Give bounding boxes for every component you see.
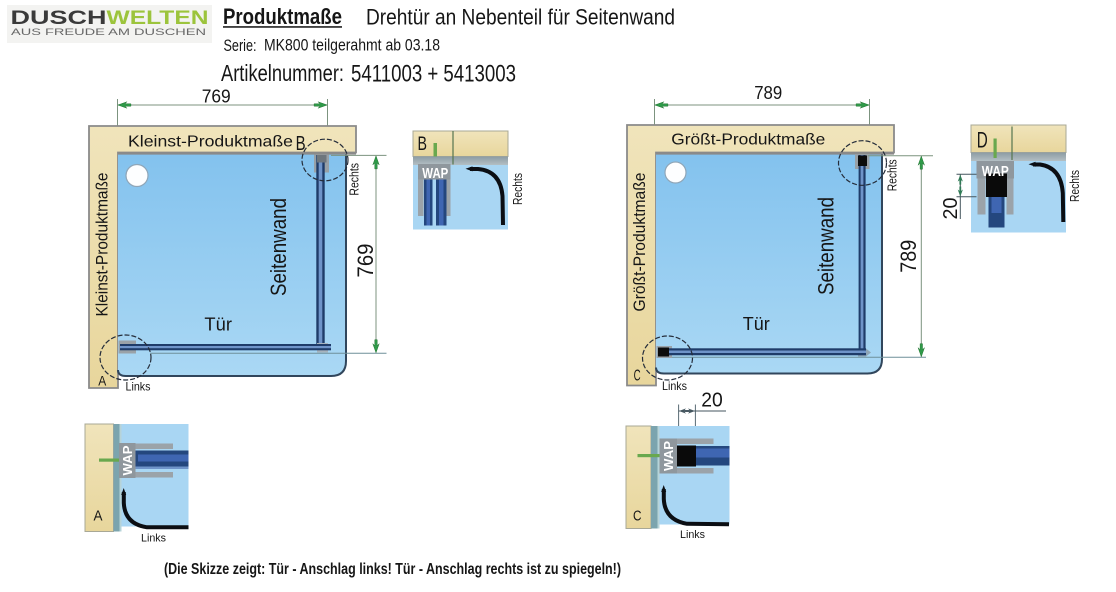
- svg-text:A: A: [98, 372, 107, 388]
- svg-text:Seitenwand: Seitenwand: [266, 198, 291, 296]
- svg-text:Tür: Tür: [204, 315, 232, 335]
- svg-text:Drehtür an Nebenteil für Seite: Drehtür an Nebenteil für Seitenwand: [366, 4, 675, 29]
- svg-text:Rechts: Rechts: [347, 163, 362, 196]
- svg-text:Kleinst-Produktmaße: Kleinst-Produktmaße: [128, 133, 293, 150]
- svg-text:WELTEN: WELTEN: [107, 7, 209, 29]
- svg-text:Rechts: Rechts: [1067, 170, 1082, 202]
- svg-text:Produktmaße: Produktmaße: [223, 4, 342, 29]
- svg-text:C: C: [634, 368, 641, 385]
- svg-text:D: D: [977, 127, 988, 152]
- svg-text:20: 20: [940, 198, 962, 220]
- svg-text:MK800 teilgerahmt ab 03.18: MK800 teilgerahmt ab 03.18: [264, 36, 440, 55]
- svg-text:AUS FREUDE AM DUSCHEN: AUS FREUDE AM DUSCHEN: [11, 27, 206, 37]
- svg-text:Seitenwand: Seitenwand: [814, 197, 839, 295]
- svg-text:(Die Skizze zeigt: Tür - Ansch: (Die Skizze zeigt: Tür - Anschlag links!…: [164, 561, 621, 578]
- svg-text:WAP: WAP: [661, 441, 676, 471]
- svg-text:WAP: WAP: [982, 163, 1009, 180]
- svg-text:DUSCH: DUSCH: [11, 7, 107, 29]
- svg-text:769: 769: [202, 87, 231, 107]
- svg-text:Kleinst-Produktmaße: Kleinst-Produktmaße: [92, 173, 111, 317]
- svg-text:C: C: [633, 508, 642, 525]
- svg-text:WAP: WAP: [120, 445, 135, 475]
- svg-text:Serie:: Serie:: [224, 36, 257, 55]
- svg-text:Rechts: Rechts: [884, 159, 899, 191]
- svg-text:789: 789: [754, 83, 782, 103]
- svg-text:Tür: Tür: [743, 314, 770, 334]
- svg-text:769: 769: [353, 244, 378, 278]
- svg-text:789: 789: [896, 240, 921, 273]
- svg-text:B: B: [296, 133, 306, 155]
- svg-text:Links: Links: [662, 379, 687, 393]
- svg-text:Links: Links: [141, 532, 166, 544]
- svg-text:Artikelnummer:: Artikelnummer:: [221, 60, 344, 86]
- svg-text:B: B: [418, 134, 428, 155]
- svg-text:Größt-Produktmaße: Größt-Produktmaße: [630, 173, 649, 312]
- svg-text:Links: Links: [126, 379, 151, 393]
- svg-text:5411003 + 5413003: 5411003 + 5413003: [351, 60, 516, 87]
- svg-text:Links: Links: [680, 529, 705, 541]
- svg-text:Größt-Produktmaße: Größt-Produktmaße: [671, 132, 825, 149]
- svg-text:A: A: [94, 507, 103, 524]
- svg-text:WAP: WAP: [422, 165, 448, 182]
- svg-text:20: 20: [701, 390, 723, 412]
- svg-text:Rechts: Rechts: [510, 173, 525, 205]
